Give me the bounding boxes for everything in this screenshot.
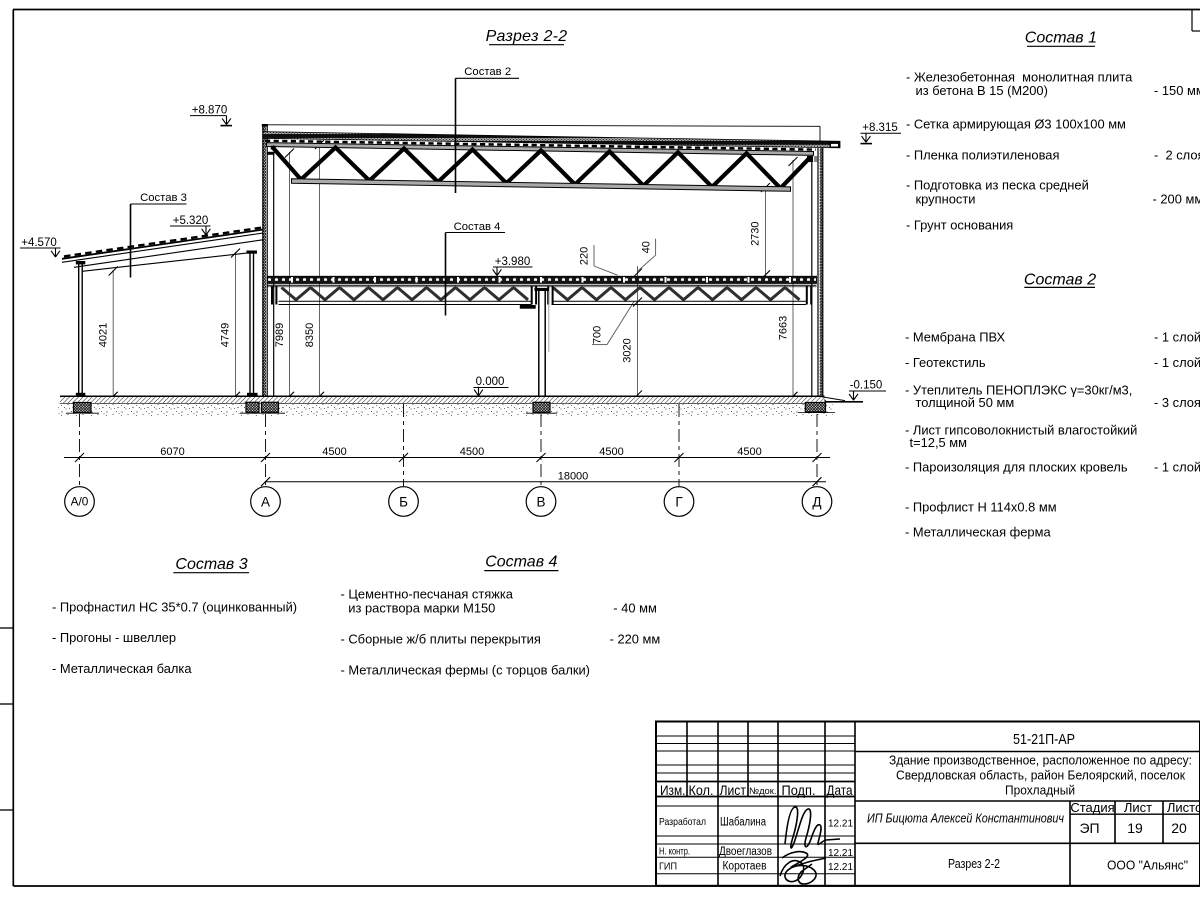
svg-text:6070: 6070 (160, 446, 184, 458)
svg-text:19: 19 (1127, 820, 1143, 836)
svg-text:18000: 18000 (558, 471, 589, 483)
svg-text:- Пароизоляция для плоских кро: - Пароизоляция для плоских кровель (905, 460, 1128, 475)
svg-text:2730: 2730 (750, 221, 762, 245)
svg-text:- Металлическая фермы (с торцо: - Металлическая фермы (с торцов балки) (341, 663, 590, 678)
svg-text:+8.315: +8.315 (862, 122, 898, 134)
svg-text:В: В (536, 495, 545, 510)
svg-text:Подп.: Подп. (782, 783, 816, 798)
svg-text:А/0: А/0 (71, 495, 89, 509)
svg-text:- Цементно-песчаная стяжка: - Цементно-песчаная стяжка (341, 586, 514, 601)
svg-text:из бетона В 15 (М200): из бетона В 15 (М200) (916, 83, 1048, 98)
svg-text:Кол.: Кол. (689, 783, 714, 798)
svg-text:Б: Б (399, 495, 408, 510)
svg-text:Состав 2: Состав 2 (1024, 272, 1096, 289)
svg-text:Состав 4: Состав 4 (454, 221, 501, 233)
svg-text:Двоеглазов: Двоеглазов (719, 846, 772, 858)
svg-text:Лист: Лист (1124, 800, 1152, 815)
svg-text:- 3 слоя: - 3 слоя (1154, 395, 1200, 410)
svg-text:А: А (261, 495, 270, 510)
svg-text:- 150 мм: - 150 мм (1154, 83, 1200, 98)
svg-text:Состав 3: Состав 3 (175, 556, 247, 573)
svg-text:- Профлист Н 114х0.8 мм: - Профлист Н 114х0.8 мм (905, 500, 1057, 515)
svg-text:Здание производственное, распо: Здание производственное, расположенное п… (889, 754, 1192, 768)
svg-text:12.21: 12.21 (828, 848, 853, 859)
svg-text:- 1 слой: - 1 слой (1154, 330, 1200, 345)
svg-text:8350: 8350 (304, 323, 316, 347)
svg-text:№док.: №док. (749, 786, 777, 797)
svg-text:Состав 1: Состав 1 (1025, 30, 1097, 47)
svg-text:- Мембрана ПВХ: - Мембрана ПВХ (905, 330, 1006, 345)
svg-text:Д: Д (812, 495, 821, 510)
svg-text:+4.570: +4.570 (21, 237, 57, 249)
svg-text:- Сборные ж/б плиты перекрытия: - Сборные ж/б плиты перекрытия (341, 632, 541, 647)
svg-text:+3.980: +3.980 (495, 256, 531, 268)
svg-text:- Профнастил НС 35*0.7 (оцинко: - Профнастил НС 35*0.7 (оцинкованный) (52, 600, 297, 615)
svg-text:- Металлическая балка: - Металлическая балка (52, 661, 192, 676)
svg-text:Шабалина: Шабалина (720, 817, 766, 829)
svg-text:- 220 мм: - 220 мм (610, 632, 661, 647)
svg-text:ЭП: ЭП (1079, 820, 1099, 836)
svg-text:Разработал: Разработал (659, 816, 706, 828)
svg-text:- Металлическая ферма: - Металлическая ферма (905, 525, 1051, 540)
svg-text:- 40 мм: - 40 мм (613, 600, 657, 615)
svg-text:4500: 4500 (599, 446, 623, 458)
svg-text:4500: 4500 (737, 446, 761, 458)
svg-text:толщиной 50 мм: толщиной 50 мм (916, 395, 1015, 410)
svg-text:- Грунт основания: - Грунт основания (906, 218, 1013, 233)
svg-text:Н. контр.: Н. контр. (659, 846, 690, 858)
svg-text:Лист: Лист (720, 783, 747, 798)
svg-text:- Прогоны - швеллер: - Прогоны - швеллер (52, 630, 176, 645)
svg-text:Г: Г (675, 495, 683, 510)
svg-text:Разрез 2-2: Разрез 2-2 (948, 857, 1000, 871)
svg-text:7989: 7989 (274, 323, 286, 347)
svg-text:20: 20 (1171, 820, 1187, 836)
svg-text:t=12,5 мм: t=12,5 мм (910, 435, 968, 450)
svg-text:220: 220 (579, 247, 591, 265)
svg-text:4749: 4749 (220, 323, 232, 347)
svg-text:Дата: Дата (827, 783, 853, 798)
svg-text:4021: 4021 (98, 323, 110, 347)
svg-text:Свердловская область, район Бе: Свердловская область, район Белоярский, … (896, 769, 1185, 783)
svg-text:3020: 3020 (622, 338, 634, 362)
svg-text:- Геотекстиль: - Геотекстиль (905, 355, 986, 370)
svg-text:Состав 4: Состав 4 (485, 554, 557, 571)
svg-text:51-21П-АР: 51-21П-АР (1013, 731, 1075, 748)
svg-text:Изм.: Изм. (660, 783, 686, 798)
svg-text:700: 700 (592, 326, 604, 344)
svg-text:4500: 4500 (460, 446, 484, 458)
svg-text:- 1 слой: - 1 слой (1154, 460, 1200, 475)
svg-text:12.21: 12.21 (828, 862, 853, 873)
svg-text:0.000: 0.000 (476, 376, 505, 388)
svg-text:7663: 7663 (778, 316, 790, 340)
svg-text:Разрез 2-2: Разрез 2-2 (486, 28, 568, 45)
svg-text:Прохладный: Прохладный (1005, 784, 1075, 798)
svg-text:- Подготовка из песка средней: - Подготовка из песка средней (906, 178, 1089, 193)
svg-text:Стадия: Стадия (1070, 800, 1114, 815)
svg-text:ООО "Альянс": ООО "Альянс" (1107, 858, 1188, 873)
svg-text:+8.870: +8.870 (192, 105, 228, 117)
svg-text:- 2 слоя: - 2 слоя (1154, 148, 1200, 163)
svg-text:- Пленка полиэтиленовая: - Пленка полиэтиленовая (906, 148, 1059, 163)
svg-text:- 200 мм: - 200 мм (1153, 191, 1200, 206)
svg-text:+5.320: +5.320 (173, 215, 209, 227)
svg-text:-0.150: -0.150 (850, 379, 883, 391)
svg-text:- 1 слой: - 1 слой (1154, 355, 1200, 370)
svg-text:Листов: Листов (1167, 800, 1200, 815)
svg-text:из раствора марки М150: из раствора марки М150 (348, 600, 495, 615)
svg-text:крупности: крупности (916, 191, 976, 206)
svg-text:- Сетка армирующая Ø3 100х100: - Сетка армирующая Ø3 100х100 мм (906, 117, 1126, 132)
svg-text:4500: 4500 (322, 446, 346, 458)
svg-text:Состав 2: Состав 2 (464, 66, 511, 78)
svg-text:40: 40 (641, 241, 653, 253)
svg-text:ГИП: ГИП (659, 861, 677, 873)
svg-text:12.21: 12.21 (828, 819, 853, 830)
svg-text:Состав 3: Состав 3 (140, 192, 187, 204)
svg-text:Коротаев: Коротаев (723, 861, 767, 873)
svg-text:ИП Бицюта Алексей Константинов: ИП Бицюта Алексей Константинович (867, 811, 1064, 826)
